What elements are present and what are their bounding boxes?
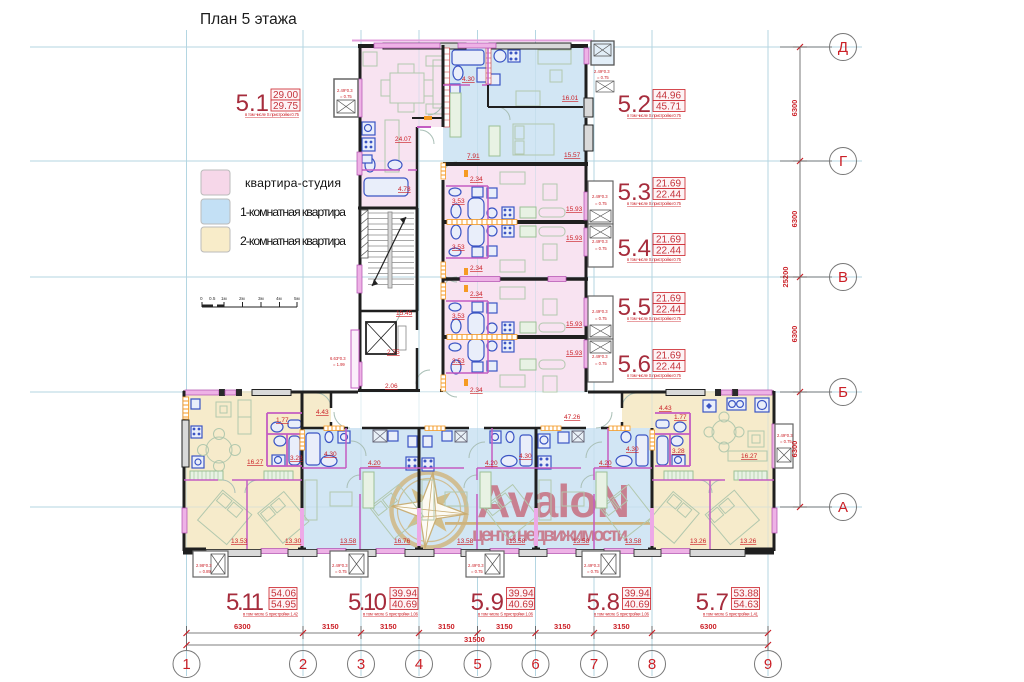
svg-text:31500: 31500 bbox=[464, 635, 485, 644]
svg-text:47.26: 47.26 bbox=[564, 414, 581, 421]
svg-text:40.69: 40.69 bbox=[392, 600, 417, 611]
svg-text:6300: 6300 bbox=[700, 622, 717, 631]
svg-text:4.30: 4.30 bbox=[462, 76, 475, 83]
svg-text:22.44: 22.44 bbox=[656, 190, 681, 201]
svg-text:1.77: 1.77 bbox=[276, 417, 289, 424]
svg-text:в том числе S пристройки 0.75: в том числе S пристройки 0.75 bbox=[627, 373, 682, 378]
svg-text:2.49*0.3: 2.49*0.3 bbox=[468, 563, 484, 568]
svg-text:21.69: 21.69 bbox=[656, 179, 681, 190]
svg-text:3150: 3150 bbox=[438, 622, 455, 631]
svg-text:2.49*0.3: 2.49*0.3 bbox=[592, 309, 608, 314]
svg-text:2.49*0.3: 2.49*0.3 bbox=[592, 194, 608, 199]
svg-text:= 0.75: = 0.75 bbox=[595, 316, 607, 321]
svg-text:16.01: 16.01 bbox=[562, 95, 579, 102]
svg-text:21.69: 21.69 bbox=[656, 294, 681, 305]
svg-text:6300: 6300 bbox=[790, 211, 799, 228]
svg-text:в том числе S пристройки 0.75: в том числе S пристройки 0.75 bbox=[627, 201, 682, 206]
svg-text:29.00: 29.00 bbox=[273, 90, 298, 101]
svg-text:= 0.75: = 0.75 bbox=[340, 94, 352, 99]
svg-text:16.27: 16.27 bbox=[741, 453, 758, 460]
svg-text:13.26: 13.26 bbox=[690, 538, 707, 545]
svg-text:4.43: 4.43 bbox=[659, 405, 672, 412]
svg-text:54.63: 54.63 bbox=[734, 600, 759, 611]
svg-text:2.75: 2.75 bbox=[387, 349, 400, 356]
svg-text:25200: 25200 bbox=[781, 267, 790, 288]
svg-text:16.76: 16.76 bbox=[394, 538, 411, 545]
svg-text:квартира-студия: квартира-студия bbox=[245, 176, 341, 190]
svg-text:3.53: 3.53 bbox=[452, 244, 465, 251]
svg-text:0: 0 bbox=[200, 296, 203, 301]
svg-text:6: 6 bbox=[531, 656, 539, 673]
svg-text:7: 7 bbox=[590, 656, 598, 673]
svg-text:в том числе S пристройки 0.75: в том числе S пристройки 0.75 bbox=[627, 113, 682, 118]
svg-text:3м: 3м bbox=[258, 296, 264, 301]
svg-text:15.57: 15.57 bbox=[564, 152, 581, 159]
svg-text:24.07: 24.07 bbox=[395, 136, 412, 143]
svg-text:15.93: 15.93 bbox=[566, 206, 583, 213]
svg-text:4.20: 4.20 bbox=[485, 460, 498, 467]
svg-text:13.58: 13.58 bbox=[573, 538, 590, 545]
svg-text:16.27: 16.27 bbox=[247, 459, 264, 466]
svg-text:В: В bbox=[838, 269, 848, 286]
svg-text:2м: 2м bbox=[239, 296, 245, 301]
svg-text:4м: 4м bbox=[276, 296, 282, 301]
svg-text:3150: 3150 bbox=[496, 622, 513, 631]
svg-text:= 0.75: = 0.75 bbox=[587, 569, 599, 574]
svg-text:= 1.99: = 1.99 bbox=[333, 362, 345, 367]
svg-text:3150: 3150 bbox=[554, 622, 571, 631]
svg-text:3150: 3150 bbox=[322, 622, 339, 631]
svg-text:2-комнатная квартира: 2-комнатная квартира bbox=[240, 234, 346, 248]
svg-text:40.69: 40.69 bbox=[625, 600, 650, 611]
svg-text:= 0.75: = 0.75 bbox=[597, 75, 609, 80]
svg-text:15.45: 15.45 bbox=[396, 310, 413, 317]
svg-text:22.44: 22.44 bbox=[656, 246, 681, 257]
svg-text:13.26: 13.26 bbox=[740, 538, 757, 545]
svg-text:= 0.89: = 0.89 bbox=[199, 569, 211, 574]
svg-text:6.63*0.3: 6.63*0.3 bbox=[330, 356, 346, 361]
svg-text:= 0.75: = 0.75 bbox=[335, 569, 347, 574]
svg-text:в том числе S пристройки 1.42: в том числе S пристройки 1.42 bbox=[243, 612, 299, 617]
svg-text:4.30: 4.30 bbox=[519, 453, 532, 460]
svg-text:3150: 3150 bbox=[380, 622, 397, 631]
svg-text:21.69: 21.69 bbox=[656, 235, 681, 246]
svg-text:1.77: 1.77 bbox=[674, 414, 687, 421]
svg-text:2.34: 2.34 bbox=[470, 387, 483, 394]
svg-text:4.43: 4.43 bbox=[316, 409, 329, 416]
svg-text:9: 9 bbox=[764, 656, 772, 673]
svg-text:1-комнатная квартира: 1-комнатная квартира bbox=[240, 205, 346, 219]
svg-text:13.53: 13.53 bbox=[231, 538, 248, 545]
svg-text:13.58: 13.58 bbox=[457, 538, 474, 545]
svg-text:0.5: 0.5 bbox=[209, 296, 216, 301]
svg-text:40.69: 40.69 bbox=[509, 600, 534, 611]
svg-text:2.49*0.3: 2.49*0.3 bbox=[777, 433, 793, 438]
svg-text:13.58: 13.58 bbox=[340, 538, 357, 545]
svg-text:13.58: 13.58 bbox=[625, 538, 642, 545]
svg-text:4.78: 4.78 bbox=[398, 186, 411, 193]
svg-text:13.30: 13.30 bbox=[285, 538, 302, 545]
svg-text:2.49*0.3: 2.49*0.3 bbox=[594, 69, 610, 74]
svg-text:15.93: 15.93 bbox=[566, 235, 583, 242]
svg-text:в том числе S пристройки 0.75: в том числе S пристройки 0.75 bbox=[627, 316, 682, 321]
svg-text:2.49*0.3: 2.49*0.3 bbox=[337, 88, 353, 93]
svg-text:15.93: 15.93 bbox=[566, 350, 583, 357]
svg-text:Г: Г bbox=[839, 153, 847, 170]
svg-text:6300: 6300 bbox=[234, 622, 251, 631]
svg-text:= 0.75: = 0.75 bbox=[595, 201, 607, 206]
svg-text:54.95: 54.95 bbox=[271, 600, 296, 611]
svg-text:1м: 1м bbox=[221, 296, 227, 301]
svg-text:39.94: 39.94 bbox=[509, 589, 534, 600]
svg-text:в том числе S пристройки 1.06: в том числе S пристройки 1.06 bbox=[363, 612, 419, 617]
svg-text:3.28: 3.28 bbox=[672, 448, 685, 455]
svg-text:в том числе S пристройки 0.75: в том числе S пристройки 0.75 bbox=[245, 112, 300, 117]
svg-text:3.53: 3.53 bbox=[452, 198, 465, 205]
svg-text:А: А bbox=[838, 499, 848, 516]
svg-text:6300: 6300 bbox=[790, 100, 799, 117]
svg-text:54.06: 54.06 bbox=[271, 589, 296, 600]
svg-text:22.44: 22.44 bbox=[656, 362, 681, 373]
svg-text:в том числе S пристройки 1.06: в том числе S пристройки 1.06 bbox=[478, 612, 534, 617]
svg-text:План 5 этажа: План 5 этажа bbox=[200, 11, 297, 28]
svg-text:4: 4 bbox=[415, 656, 423, 673]
svg-text:15.93: 15.93 bbox=[566, 321, 583, 328]
svg-text:3150: 3150 bbox=[613, 622, 630, 631]
svg-text:Д: Д bbox=[838, 39, 848, 56]
svg-text:6300: 6300 bbox=[790, 441, 799, 458]
svg-text:7.91: 7.91 bbox=[467, 153, 480, 160]
svg-text:Б: Б bbox=[838, 384, 848, 401]
svg-text:= 0.75: = 0.75 bbox=[471, 569, 483, 574]
svg-text:3.53: 3.53 bbox=[452, 358, 465, 365]
svg-text:4.30: 4.30 bbox=[626, 446, 639, 453]
svg-text:2.34: 2.34 bbox=[470, 291, 483, 298]
svg-text:3.53: 3.53 bbox=[452, 313, 465, 320]
svg-text:= 0.75: = 0.75 bbox=[595, 361, 607, 366]
svg-text:2.34: 2.34 bbox=[470, 176, 483, 183]
svg-text:39.94: 39.94 bbox=[625, 589, 650, 600]
svg-text:53.88: 53.88 bbox=[734, 589, 759, 600]
svg-text:22.44: 22.44 bbox=[656, 305, 681, 316]
svg-text:4.30: 4.30 bbox=[324, 451, 337, 458]
svg-text:= 0.75: = 0.75 bbox=[595, 246, 607, 251]
svg-text:21.69: 21.69 bbox=[656, 351, 681, 362]
svg-text:5: 5 bbox=[473, 656, 481, 673]
svg-text:в том числе S пристройки 0.75: в том числе S пристройки 0.75 bbox=[627, 257, 682, 262]
svg-text:3.28: 3.28 bbox=[290, 455, 303, 462]
svg-text:29.75: 29.75 bbox=[273, 101, 298, 112]
svg-text:6300: 6300 bbox=[790, 326, 799, 343]
svg-text:1: 1 bbox=[182, 656, 190, 673]
svg-text:центр недвижимости: центр недвижимости bbox=[472, 525, 628, 546]
svg-text:в том числе S пристройки 1.41: в том числе S пристройки 1.41 bbox=[703, 612, 759, 617]
svg-text:2.06: 2.06 bbox=[385, 383, 398, 390]
svg-text:2.49*0.3: 2.49*0.3 bbox=[592, 239, 608, 244]
svg-text:2.49*0.3: 2.49*0.3 bbox=[332, 563, 348, 568]
svg-text:4.20: 4.20 bbox=[599, 460, 612, 467]
svg-text:2.49*0.3: 2.49*0.3 bbox=[592, 354, 608, 359]
svg-text:2.49*0.3: 2.49*0.3 bbox=[584, 563, 600, 568]
svg-text:44.96: 44.96 bbox=[656, 91, 681, 102]
svg-text:2.34: 2.34 bbox=[470, 265, 483, 272]
svg-text:45.71: 45.71 bbox=[656, 102, 681, 113]
svg-text:3: 3 bbox=[357, 656, 365, 673]
svg-text:в том числе S пристройки 1.06: в том числе S пристройки 1.06 bbox=[594, 612, 650, 617]
svg-text:4.20: 4.20 bbox=[368, 460, 381, 467]
svg-text:2.98*0.3: 2.98*0.3 bbox=[196, 563, 212, 568]
svg-text:13.58: 13.58 bbox=[509, 538, 526, 545]
svg-text:5м: 5м bbox=[294, 296, 300, 301]
svg-text:8: 8 bbox=[648, 656, 656, 673]
svg-text:2: 2 bbox=[299, 656, 307, 673]
svg-text:39.94: 39.94 bbox=[392, 589, 417, 600]
